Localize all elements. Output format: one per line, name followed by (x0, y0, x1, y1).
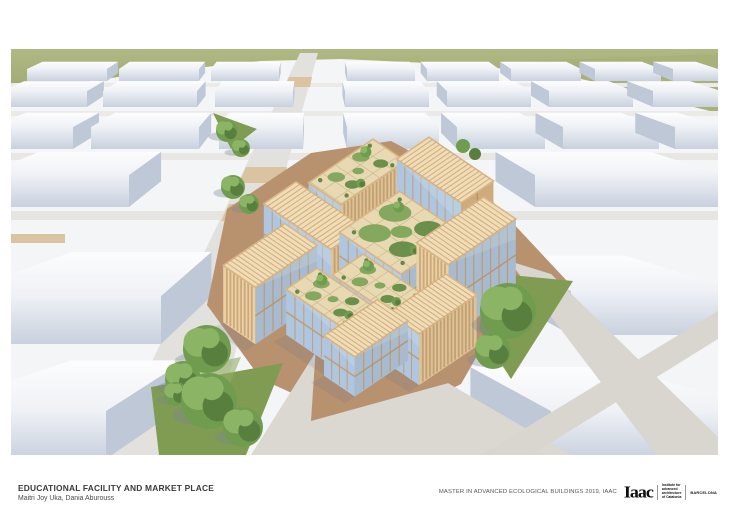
iaac-logo: Iaac Institute for advanced architecture… (624, 483, 717, 501)
iaac-institute-text: Institute for advanced architecture of C… (662, 484, 681, 500)
title-block: EDUCATIONAL FACILITY AND MARKET PLACE Ma… (18, 483, 214, 503)
logo-divider (657, 485, 658, 500)
project-title: EDUCATIONAL FACILITY AND MARKET PLACE (18, 483, 214, 494)
presentation-board: EDUCATIONAL FACILITY AND MARKET PLACE Ma… (0, 0, 730, 516)
iaac-city: BARCELONA (690, 490, 717, 495)
course-text: MASTER IN ADVANCED ECOLOGICAL BUILDINGS … (439, 489, 617, 495)
project-authors: Maitri Joy Uka, Dania Aburouss (18, 495, 214, 504)
credits-block: MASTER IN ADVANCED ECOLOGICAL BUILDINGS … (439, 483, 717, 501)
logo-divider (685, 485, 686, 500)
iaac-wordmark: Iaac (624, 483, 653, 500)
render-image (11, 49, 718, 455)
